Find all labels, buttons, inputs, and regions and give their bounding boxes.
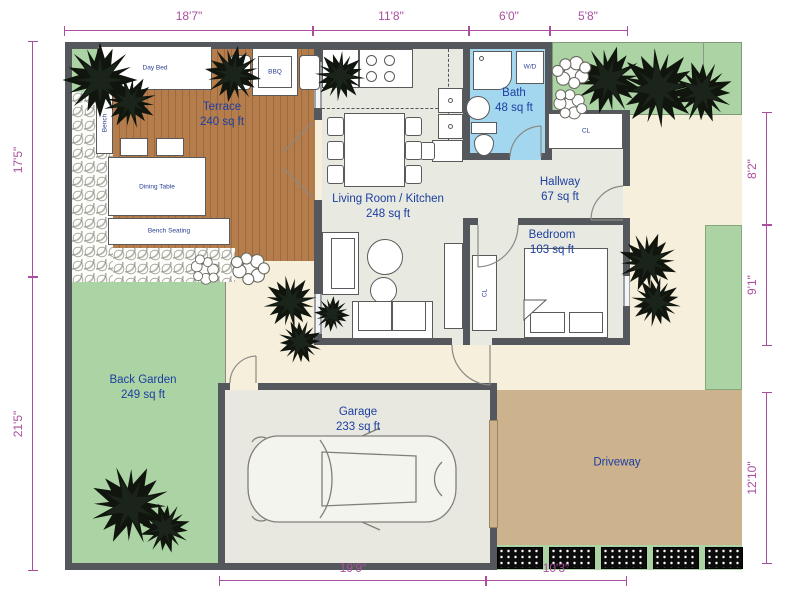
dimension-line — [220, 580, 486, 581]
kitchen-desk — [432, 140, 463, 162]
bedroom-closet-label: CL — [482, 289, 489, 297]
dimension-line — [65, 30, 313, 31]
window-icon — [623, 276, 630, 306]
bath-sink — [466, 96, 490, 120]
chair — [405, 117, 422, 136]
top-right-garden — [552, 42, 742, 115]
sink-knob-icon — [448, 124, 453, 129]
dimension-line — [766, 113, 767, 225]
dining-table-living — [344, 113, 405, 187]
dimension-label: 21'5" — [11, 411, 25, 438]
hedge-icon — [497, 547, 543, 569]
chair — [405, 165, 422, 184]
bedroom-north-wall — [463, 218, 478, 225]
outer-wall-bottom — [65, 563, 497, 570]
dimension-line — [32, 277, 33, 570]
room-label-bath: Bath48 sq ft — [495, 86, 533, 116]
pillow — [530, 312, 565, 333]
back-garden — [72, 278, 225, 563]
garage-east-wall — [490, 383, 497, 420]
chair — [327, 117, 344, 136]
dimension-label: 18'7" — [176, 9, 203, 23]
tv-unit — [444, 243, 463, 329]
bedroom-north-wall — [518, 218, 630, 225]
sofa-cushion — [358, 301, 392, 331]
garage-west-wall — [218, 383, 225, 570]
room-label-garage: Garage233 sq ft — [336, 405, 380, 435]
coffee-table — [370, 277, 397, 304]
chair — [405, 141, 422, 160]
dimension-line — [766, 393, 767, 563]
dimension-label: 17'5" — [11, 147, 25, 174]
dimension-label: 9'1" — [745, 275, 759, 295]
outer-wall-left — [65, 42, 72, 570]
pillow — [569, 312, 603, 333]
bench-label: Bench — [102, 114, 109, 132]
living-east-wall — [463, 218, 470, 345]
room-label-back-garden: Back Garden249 sq ft — [109, 373, 176, 403]
house-south-wall — [492, 338, 630, 345]
garden-divider-line — [703, 42, 704, 115]
shower-drain-icon — [479, 56, 484, 61]
chair — [327, 165, 344, 184]
dimension-label: 8'2" — [745, 159, 759, 179]
dimension-label: 12'10" — [745, 461, 759, 494]
dimension-label: 5'8" — [578, 9, 598, 23]
coffee-table — [367, 239, 403, 275]
living-west-wall — [314, 200, 322, 294]
counter-edge — [322, 108, 448, 109]
day-bed-label: Day Bed — [143, 65, 168, 72]
garage-east-wall — [490, 528, 497, 570]
desk-chair — [420, 142, 435, 160]
dimension-label: 19'9" — [340, 561, 367, 575]
loveseat-seat — [331, 238, 355, 289]
bbq-chair — [299, 55, 320, 90]
dimension-line — [32, 42, 33, 277]
chair — [327, 141, 344, 160]
dimension-line — [469, 30, 550, 31]
right-side-garden-strip — [705, 225, 742, 390]
garden-path-line — [225, 282, 226, 383]
hedge-icon — [705, 547, 743, 569]
house-south-wall — [314, 338, 452, 345]
hallway-closet-label: CL — [582, 128, 590, 135]
bbq-chair — [230, 55, 251, 90]
burner-icon — [384, 71, 395, 82]
room-label-bedroom: Bedroom103 sq ft — [529, 228, 576, 258]
bath-south-wall — [541, 153, 552, 160]
pebble-path — [113, 248, 235, 282]
dimension-line — [550, 30, 627, 31]
fridge-label: R/F — [335, 65, 345, 72]
dimension-line — [486, 580, 626, 581]
garage-north-wall — [258, 383, 497, 390]
garage-door — [489, 420, 498, 528]
dimension-line — [313, 30, 469, 31]
terrace-chair — [156, 138, 184, 156]
dimension-label: 6'0" — [499, 9, 519, 23]
sink-knob-icon — [448, 98, 453, 103]
dimension-line — [766, 225, 767, 345]
room-label-living: Living Room / Kitchen248 sq ft — [332, 192, 444, 222]
floor-plan: R/F W/D CL CL Day Bed BBQ Ben — [0, 0, 800, 600]
burner-icon — [384, 55, 395, 66]
hedge-icon — [653, 547, 699, 569]
burner-icon — [366, 55, 377, 66]
washer-dryer-label: W/D — [524, 64, 537, 71]
burner-icon — [366, 71, 377, 82]
terrace-chair — [120, 138, 148, 156]
dimension-label: 11'8" — [378, 9, 404, 23]
room-label-terrace: Terrace240 sq ft — [200, 100, 244, 130]
toilet-tank — [471, 122, 497, 134]
window-icon — [314, 294, 322, 334]
room-label-driveway: Driveway — [593, 456, 640, 471]
dimension-label: 10'3" — [543, 561, 570, 575]
dining-table-label: Dining Table — [139, 184, 175, 191]
room-label-hallway: Hallway67 sq ft — [540, 175, 580, 205]
house-east-wall — [623, 110, 630, 186]
bbq-label: BBQ — [268, 69, 282, 76]
hedge-icon — [601, 547, 647, 569]
bench-seating-label: Bench Seating — [148, 228, 190, 235]
sofa-cushion — [392, 301, 426, 331]
